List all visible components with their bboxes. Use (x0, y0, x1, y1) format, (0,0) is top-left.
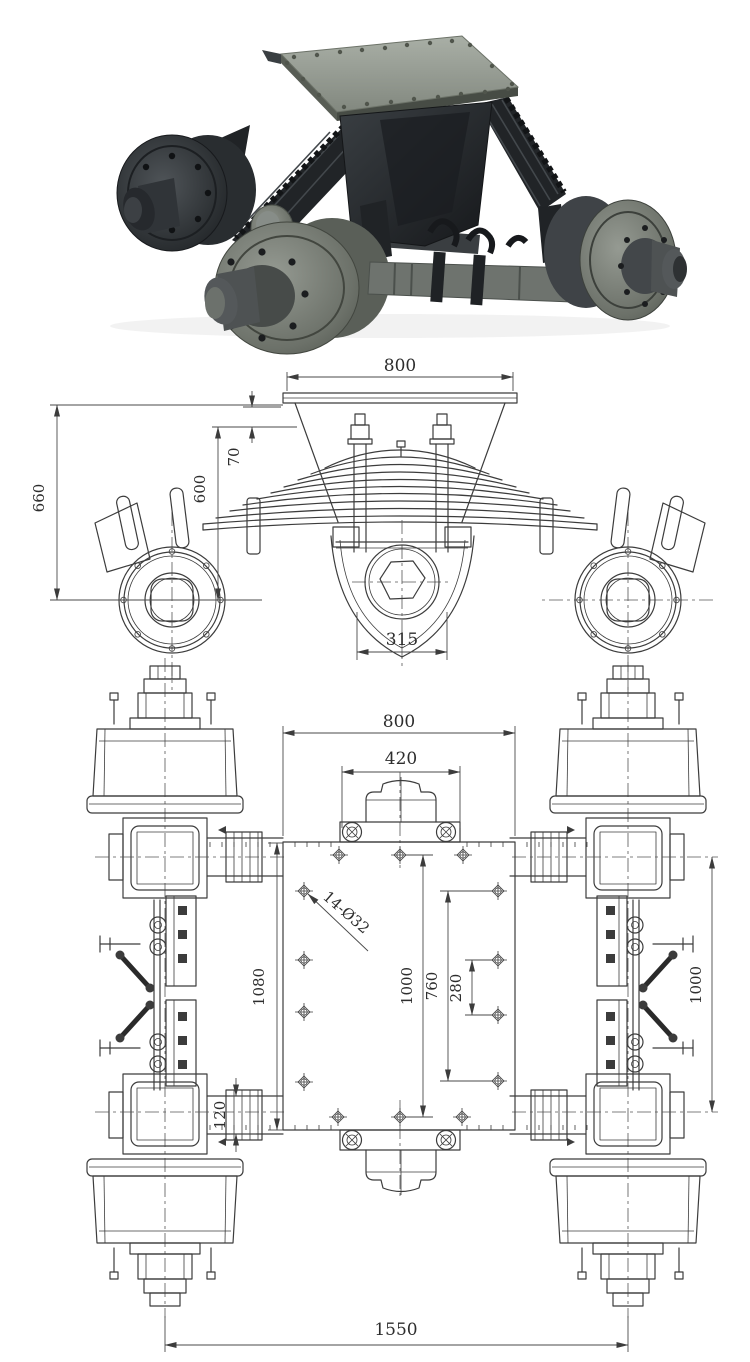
pv-dimensions: 800 420 14-Ø32 1080 1000 760 280 (165, 712, 712, 1352)
pv-axle-column-right (510, 658, 706, 1318)
fv-dim-800: 800 (384, 356, 416, 376)
photo-shadow (110, 314, 670, 338)
plan-view-drawing: 800 420 14-Ø32 1080 1000 760 280 (87, 658, 718, 1352)
pv-dim-120: 120 (211, 1101, 229, 1130)
fv-u-bolts (348, 414, 454, 552)
pv-dim-280: 280 (447, 974, 465, 1003)
fv-dim-600: 600 (191, 475, 209, 504)
pv-dim-800: 800 (383, 712, 415, 732)
pv-dim-1080: 1080 (250, 968, 268, 1006)
rear-left-brake-drum (117, 135, 256, 251)
pv-dim-1000-right: 1000 (687, 966, 705, 1004)
fv-wheel-hub-left (87, 487, 258, 690)
pv-dim-1550: 1550 (374, 1320, 417, 1340)
fv-wheel-hub-right (542, 487, 713, 690)
fv-dim-70: 70 (225, 447, 243, 466)
fv-dim-315: 315 (386, 630, 418, 650)
right-leaf-spring-pack (478, 97, 566, 212)
pv-dim-1000-left: 1000 (398, 967, 416, 1005)
pv-dim-760: 760 (423, 972, 441, 1001)
bogie-drawing-canvas: 800 70 600 660 315 (0, 0, 750, 1362)
fv-leaf-spring (203, 450, 597, 554)
fv-dim-660: 660 (30, 484, 48, 513)
product-photo (110, 36, 687, 354)
pv-dim-420: 420 (385, 749, 417, 769)
drawing-sheet: 800 70 600 660 315 (0, 0, 750, 1362)
front-view-drawing: 800 70 600 660 315 (30, 356, 713, 690)
